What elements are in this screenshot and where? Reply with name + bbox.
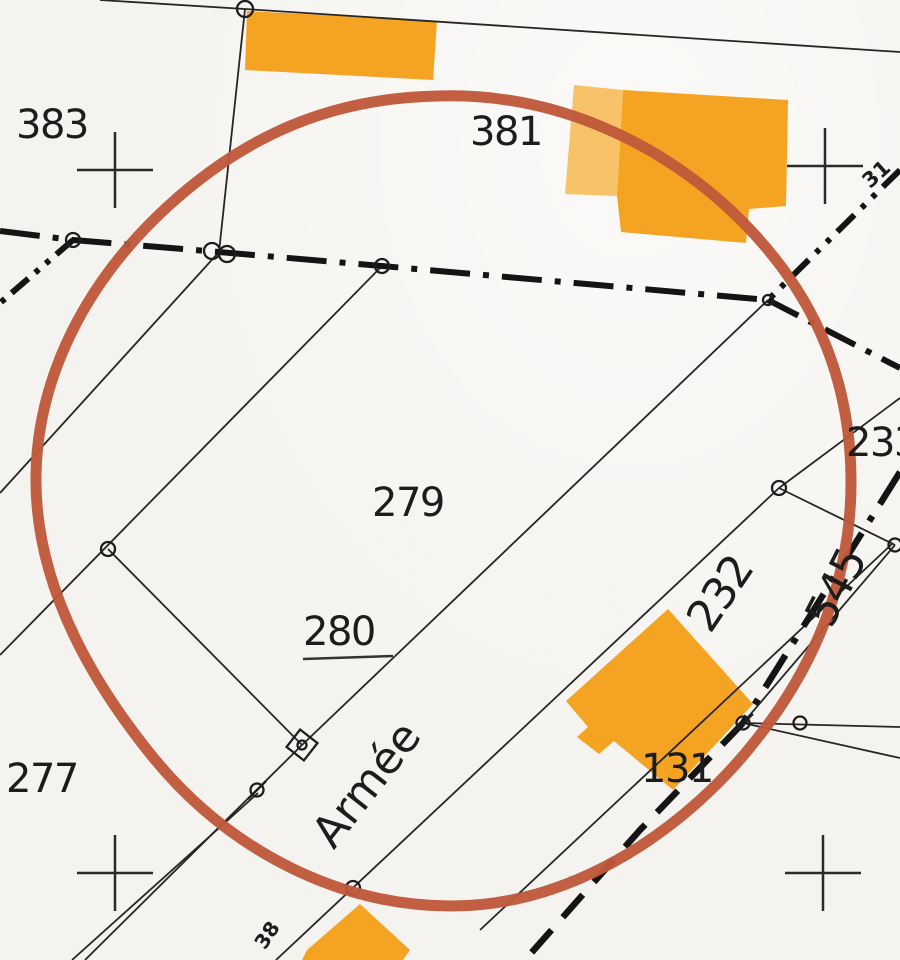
building-polygon — [617, 90, 788, 243]
station-marker — [248, 781, 266, 799]
survey-cross — [787, 128, 863, 204]
parcel-label-131: 131 — [641, 749, 713, 789]
parcel-label-383: 383 — [16, 105, 88, 145]
cadastral-map: 383 381 279 280 277 232 545 131 233 Armé… — [0, 0, 900, 960]
building-polygon — [302, 904, 410, 960]
parcel-label-381: 381 — [470, 112, 542, 152]
parcel-label-279: 279 — [372, 483, 444, 523]
boundary-point-marker — [794, 717, 807, 730]
parcel-label-277: 277 — [6, 759, 78, 799]
survey-cross — [77, 835, 153, 911]
building-polygon-light-wing — [565, 85, 623, 196]
survey-cross — [77, 132, 153, 208]
survey-cross — [785, 835, 861, 911]
parcel-280-underline — [303, 656, 393, 659]
boundary-dashdot-lines — [0, 170, 900, 960]
building-polygon — [245, 11, 437, 80]
map-canvas — [0, 0, 900, 960]
parcel-label-280: 280 — [303, 612, 375, 652]
parcel-label-233-clipped: 233 — [846, 423, 900, 463]
